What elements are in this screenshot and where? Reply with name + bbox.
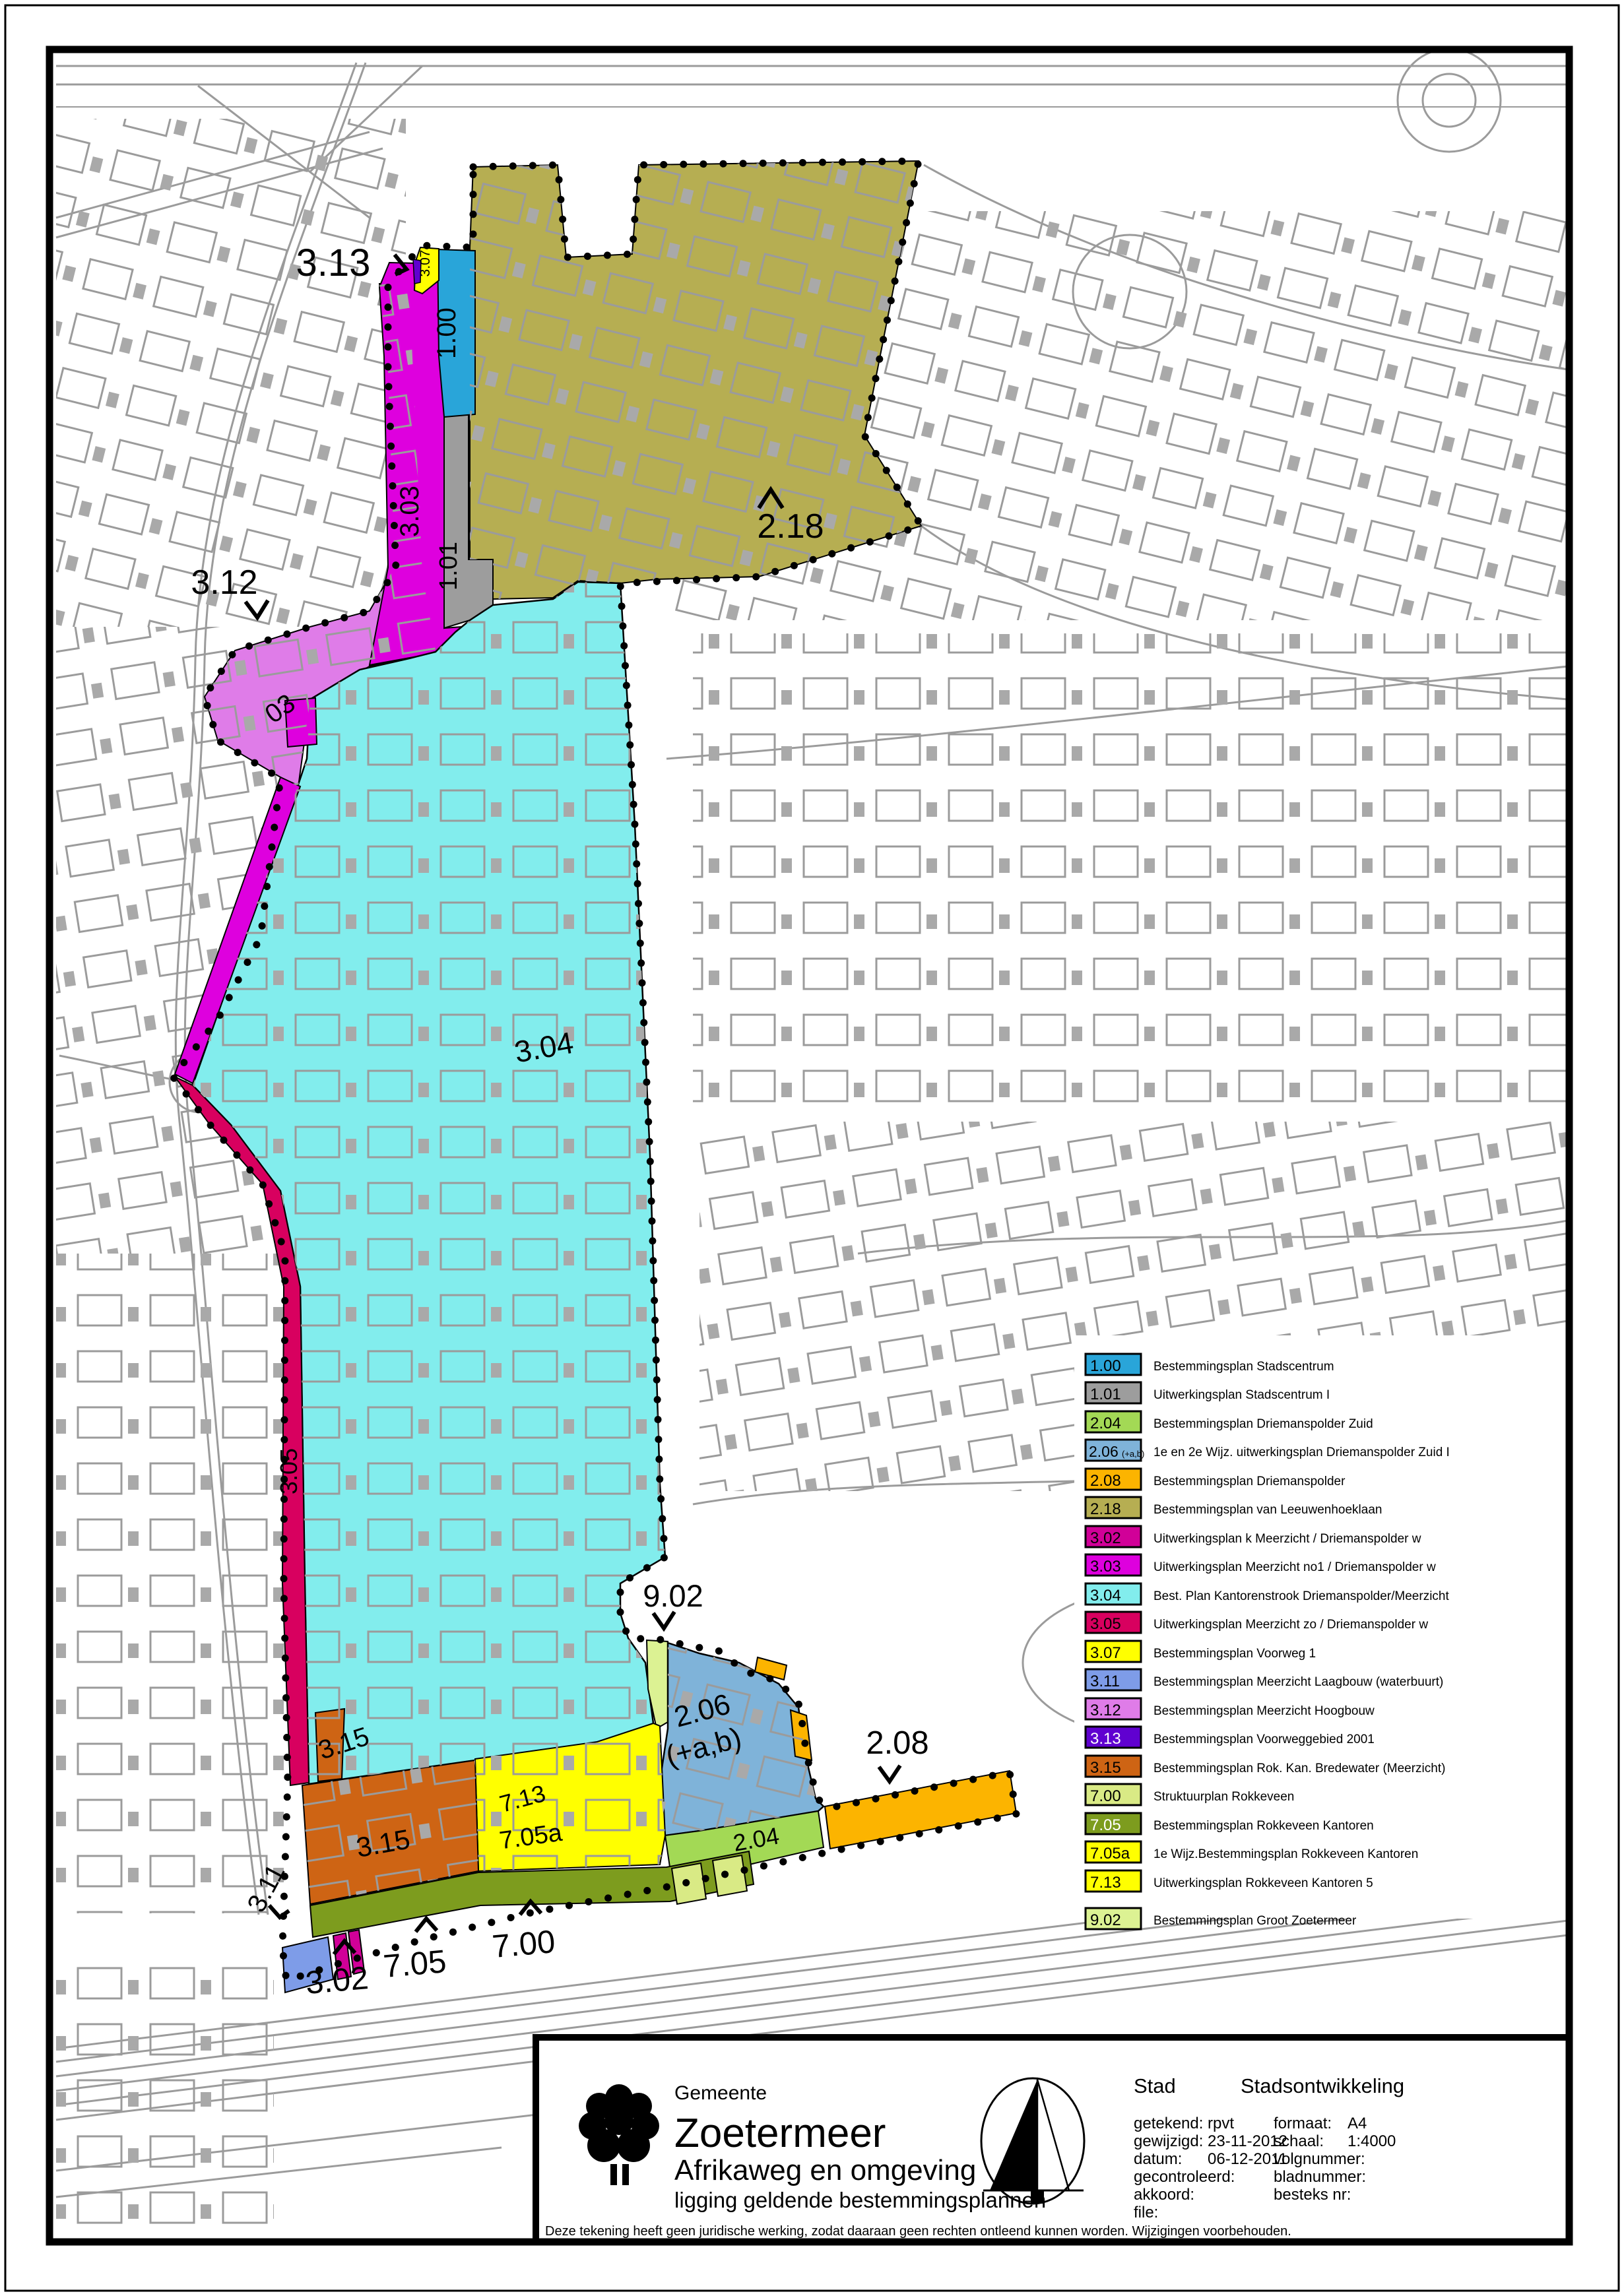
legend-label: Bestemmingsplan Stadscentrum: [1153, 1360, 1334, 1374]
legend-code: 3.03: [1090, 1558, 1121, 1576]
legend-code: 1.01: [1090, 1386, 1121, 1403]
map-label-3-02: 3.02: [304, 1960, 370, 2001]
map-label-1-01: 1.01: [435, 542, 463, 590]
gemeente-label: Gemeente: [674, 2082, 767, 2104]
map-label-3-12: 3.12: [191, 563, 257, 602]
legend-label: 1e Wijz.Bestemmingsplan Rokkeveen Kantor…: [1153, 1847, 1418, 1861]
legend-label: Bestemmingsplan Driemanspolder Zuid: [1153, 1417, 1373, 1431]
legend-label: Bestemmingsplan Rokkeveen Kantoren: [1153, 1819, 1374, 1833]
legend-label: Best. Plan Kantorenstrook Driemanspolder…: [1153, 1589, 1449, 1603]
legend: 1.00 Bestemmingsplan Stadscentrum 1.01 U…: [1074, 1335, 1568, 1929]
map-label-7-00: 7.00: [491, 1924, 557, 1965]
field-label: bladnummer:: [1274, 2168, 1366, 2186]
municipality-name: Zoetermeer: [674, 2111, 886, 2156]
zone-7-00-b: [713, 1855, 747, 1896]
map-label-3-05: 3.05: [275, 1448, 302, 1494]
field-label: getekend:: [1134, 2115, 1203, 2132]
legend-code: 2.06: [1089, 1443, 1119, 1460]
legend-code-suffix: (+a,b): [1122, 1449, 1144, 1459]
field-label: datum:: [1134, 2150, 1182, 2168]
legend-code: 3.04: [1090, 1587, 1121, 1605]
field-label: schaal:: [1274, 2132, 1324, 2150]
title-block: Gemeente Zoetermeer Afrikaweg en omgevin…: [536, 2037, 1569, 2242]
legend-label: Struktuurplan Rokkeveen: [1153, 1790, 1294, 1804]
legend-code: 2.18: [1090, 1500, 1121, 1518]
legend-code: 3.11: [1090, 1673, 1120, 1690]
disclaimer-text: Deze tekening heeft geen juridische werk…: [545, 2224, 1291, 2239]
field-value: rpvt: [1208, 2115, 1234, 2132]
dept-left: Stad: [1134, 2074, 1176, 2097]
legend-code: 3.02: [1090, 1529, 1121, 1547]
legend-code: 3.07: [1090, 1644, 1121, 1662]
legend-code: 7.00: [1090, 1787, 1121, 1805]
legend-code: 3.05: [1090, 1615, 1121, 1633]
legend-label: Bestemmingsplan van Leeuwenhoeklaan: [1153, 1503, 1382, 1517]
legend-code: 2.08: [1090, 1472, 1121, 1490]
field-value: 1:4000: [1348, 2132, 1396, 2150]
field-label: volgnummer:: [1274, 2150, 1365, 2168]
project-title: Afrikaweg en omgeving: [674, 2154, 976, 2186]
legend-label: 1e en 2e Wijz. uitwerkingsplan Driemansp…: [1153, 1446, 1450, 1459]
field-value: A4: [1348, 2115, 1367, 2132]
legend-label: Bestemmingsplan Meerzicht Hoogbouw: [1153, 1704, 1375, 1718]
legend-code: 2.04: [1090, 1415, 1121, 1432]
legend-code: 3.12: [1090, 1702, 1121, 1719]
legend-label: Bestemmingsplan Groot Zoetermeer: [1153, 1914, 1357, 1928]
project-subtitle: ligging geldende bestemmingsplannen: [674, 2188, 1046, 2212]
map-label-3-03: 3.03: [395, 486, 424, 537]
legend-code: 9.02: [1090, 1911, 1121, 1929]
legend-code: 3.13: [1090, 1730, 1121, 1748]
field-label: formaat:: [1274, 2115, 1332, 2132]
field-label: file:: [1134, 2204, 1158, 2221]
field-label: gewijzigd:: [1134, 2132, 1203, 2150]
legend-label: Bestemmingsplan Voorweg 1: [1153, 1647, 1316, 1661]
legend-label: Uitwerkingsplan Rokkeveen Kantoren 5: [1153, 1876, 1373, 1890]
legend-label: Uitwerkingsplan Stadscentrum I: [1153, 1388, 1330, 1402]
dept-right: Stadsontwikkeling: [1241, 2074, 1404, 2097]
field-label: akkoord:: [1134, 2186, 1194, 2204]
map-label-7-05: 7.05: [382, 1944, 448, 1985]
map-label-3-13: 3.13: [296, 241, 371, 284]
legend-label: Bestemmingsplan Rok. Kan. Bredewater (Me…: [1153, 1762, 1445, 1775]
map-label-2-18: 2.18: [757, 507, 824, 546]
legend-label: Bestemmingsplan Meerzicht Laagbouw (wate…: [1153, 1675, 1443, 1689]
map-label-9-02: 9.02: [643, 1578, 703, 1613]
legend-code: 1.00: [1090, 1357, 1121, 1375]
legend-code: 7.05a: [1090, 1845, 1130, 1863]
map-label-2-08: 2.08: [866, 1725, 928, 1761]
legend-label: Uitwerkingsplan Meerzicht no1 / Driemans…: [1153, 1560, 1436, 1574]
field-label: gecontroleerd:: [1134, 2168, 1235, 2186]
legend-label: Bestemmingsplan Voorweggebied 2001: [1153, 1733, 1375, 1746]
map-label-1-00: 1.00: [432, 307, 461, 359]
map-canvas: 3.13 3.07 1.00 3.03 1.01 2.18 3.12 03 3.…: [0, 0, 1624, 2296]
legend-label: Bestemmingsplan Driemanspolder: [1153, 1475, 1346, 1488]
legend-code: 3.15: [1090, 1759, 1121, 1777]
legend-label: Uitwerkingsplan Meerzicht zo / Driemansp…: [1153, 1618, 1428, 1632]
map-label-3-07: 3.07: [418, 250, 433, 277]
legend-code: 7.13: [1090, 1874, 1121, 1892]
field-label: besteks nr:: [1274, 2186, 1351, 2204]
legend-code: 7.05: [1090, 1816, 1121, 1834]
legend-label: Uitwerkingsplan k Meerzicht / Driemanspo…: [1153, 1532, 1421, 1546]
